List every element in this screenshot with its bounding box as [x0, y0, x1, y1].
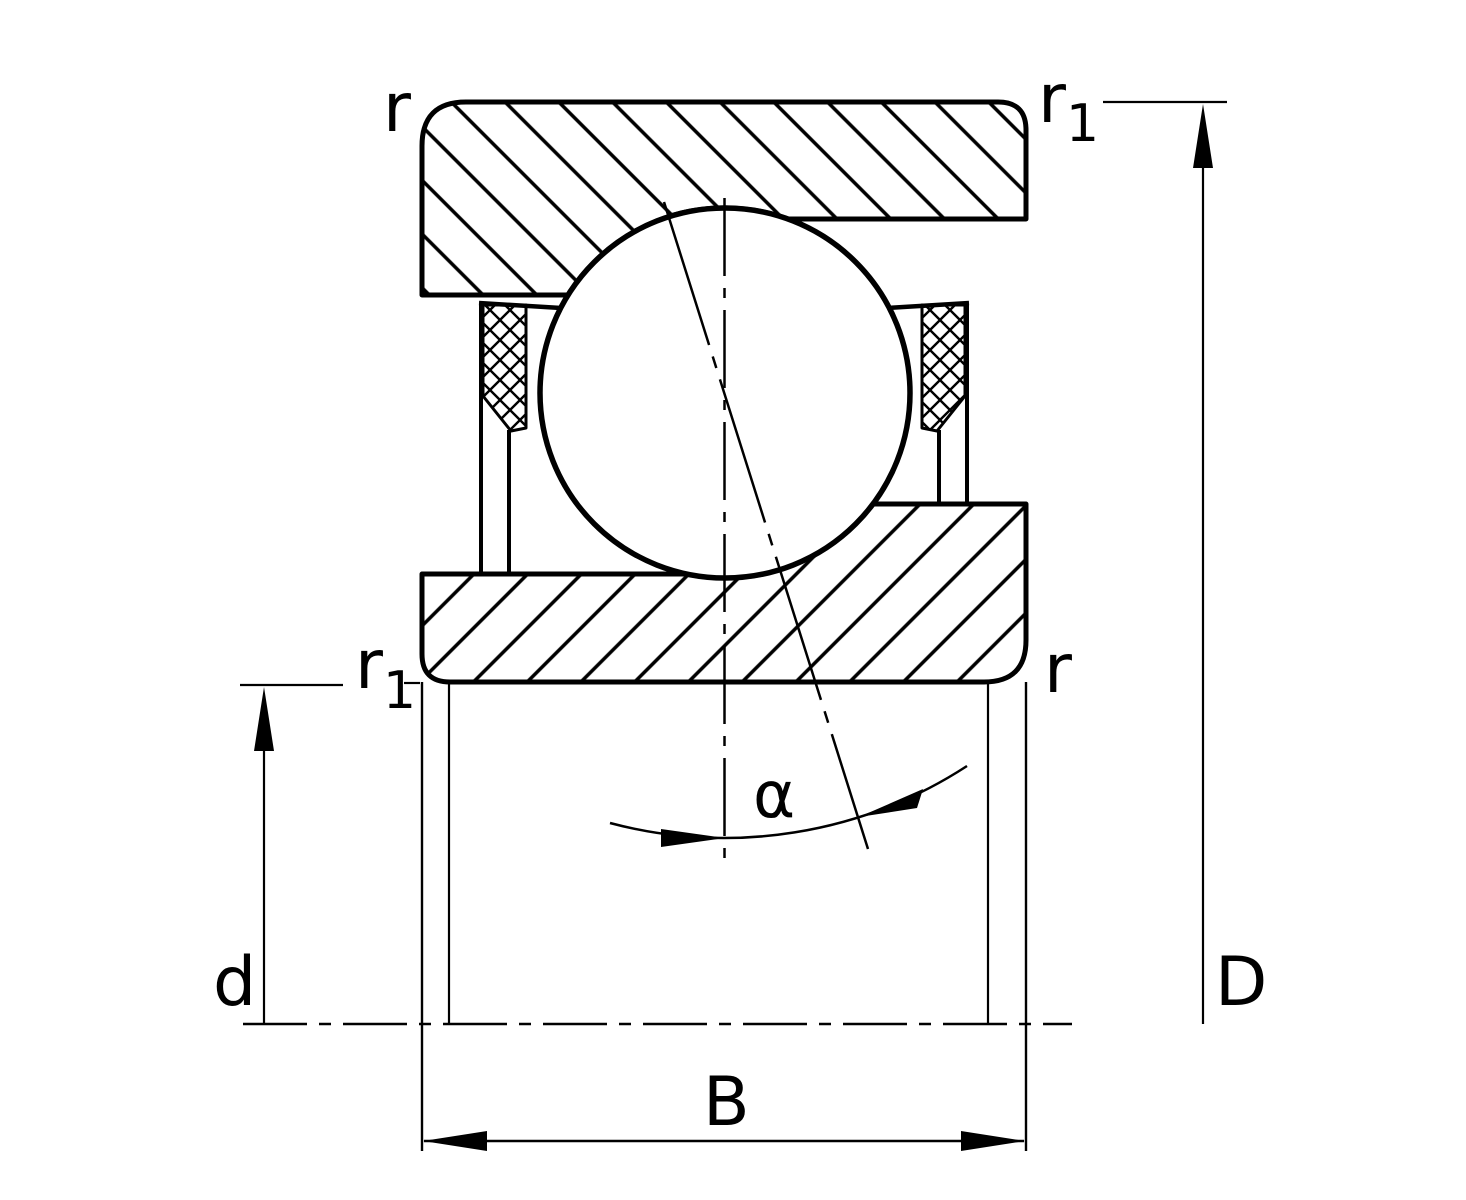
r1-label-inner-left: r1: [355, 626, 416, 721]
contact-angle-dimension: α: [610, 759, 967, 847]
B-label: B: [703, 1063, 750, 1142]
r-label-outer-left: r: [383, 69, 411, 148]
dimension-d: d: [213, 685, 343, 1024]
bearing-drawing-page: d D B α r r1 r1 r: [0, 0, 1466, 1200]
bearing-cross-section-diagram: d D B α r r1 r1 r: [0, 0, 1466, 1200]
D-label: D: [1215, 943, 1267, 1022]
D-arrowhead: [1193, 104, 1213, 168]
r-label-inner-right: r: [1044, 630, 1072, 709]
B-arrowhead-left: [423, 1131, 487, 1151]
r1-label-outer-right: r1: [1038, 60, 1099, 154]
d-label: d: [213, 943, 256, 1022]
B-arrowhead-right: [961, 1131, 1025, 1151]
dimension-B: B: [423, 1063, 1025, 1151]
d-arrowhead: [254, 687, 274, 751]
cage-left-crosshatch: [483, 305, 526, 431]
cage-right-crosshatch: [922, 305, 965, 431]
alpha-label: α: [753, 759, 795, 833]
angle-arrowhead-left: [661, 829, 725, 847]
dimension-D: D: [1103, 102, 1267, 1024]
